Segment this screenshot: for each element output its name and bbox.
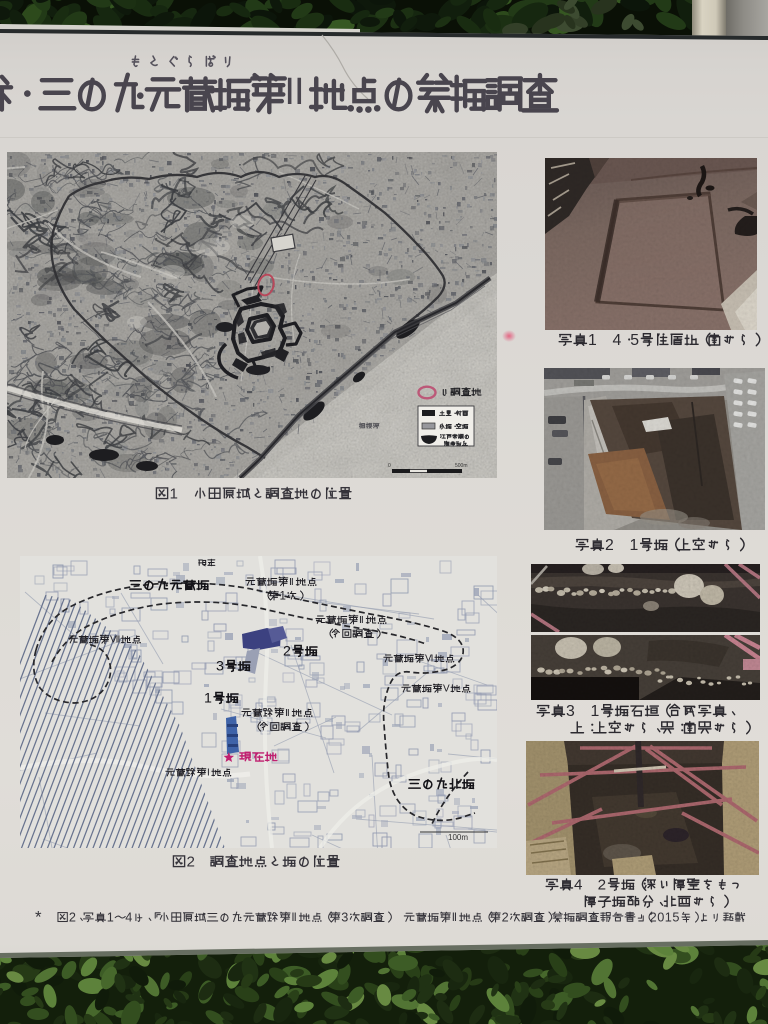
svg-text:2: 2 bbox=[605, 537, 614, 554]
svg-text:2: 2 bbox=[598, 877, 606, 893]
svg-text:II: II bbox=[291, 912, 296, 924]
svg-text:2: 2 bbox=[187, 854, 195, 870]
svg-text:2: 2 bbox=[650, 911, 657, 924]
svg-text:VII: VII bbox=[110, 635, 119, 646]
svg-text:II: II bbox=[285, 708, 289, 719]
svg-text:3: 3 bbox=[341, 911, 348, 924]
svg-text:3: 3 bbox=[216, 659, 224, 675]
svg-text:2: 2 bbox=[502, 911, 509, 924]
svg-text:500m: 500m bbox=[455, 463, 468, 469]
svg-text:4: 4 bbox=[574, 877, 582, 893]
svg-text:1: 1 bbox=[588, 332, 597, 349]
svg-text:2: 2 bbox=[283, 644, 291, 660]
svg-text:1: 1 bbox=[591, 703, 600, 720]
svg-text:3: 3 bbox=[566, 703, 575, 720]
svg-text:4: 4 bbox=[613, 332, 622, 349]
svg-text:I: I bbox=[207, 768, 209, 779]
svg-text:2: 2 bbox=[69, 911, 76, 924]
svg-text:5: 5 bbox=[630, 332, 639, 349]
svg-text:II: II bbox=[289, 577, 293, 588]
svg-text:1: 1 bbox=[107, 911, 114, 924]
svg-text:1: 1 bbox=[170, 486, 178, 502]
svg-text:4: 4 bbox=[125, 911, 132, 924]
svg-text:1: 1 bbox=[280, 589, 286, 602]
svg-text:II: II bbox=[452, 912, 457, 924]
svg-text:5: 5 bbox=[672, 911, 679, 924]
svg-text:100m: 100m bbox=[448, 833, 468, 842]
svg-text:II: II bbox=[284, 71, 303, 113]
svg-text:II: II bbox=[359, 615, 363, 626]
svg-text:*: * bbox=[35, 911, 42, 927]
svg-text:1: 1 bbox=[204, 691, 212, 707]
svg-text:VI: VI bbox=[425, 654, 433, 665]
svg-text:0: 0 bbox=[657, 911, 664, 924]
svg-text:1: 1 bbox=[630, 537, 639, 554]
svg-text:0: 0 bbox=[388, 463, 391, 469]
svg-text:1: 1 bbox=[665, 911, 672, 924]
